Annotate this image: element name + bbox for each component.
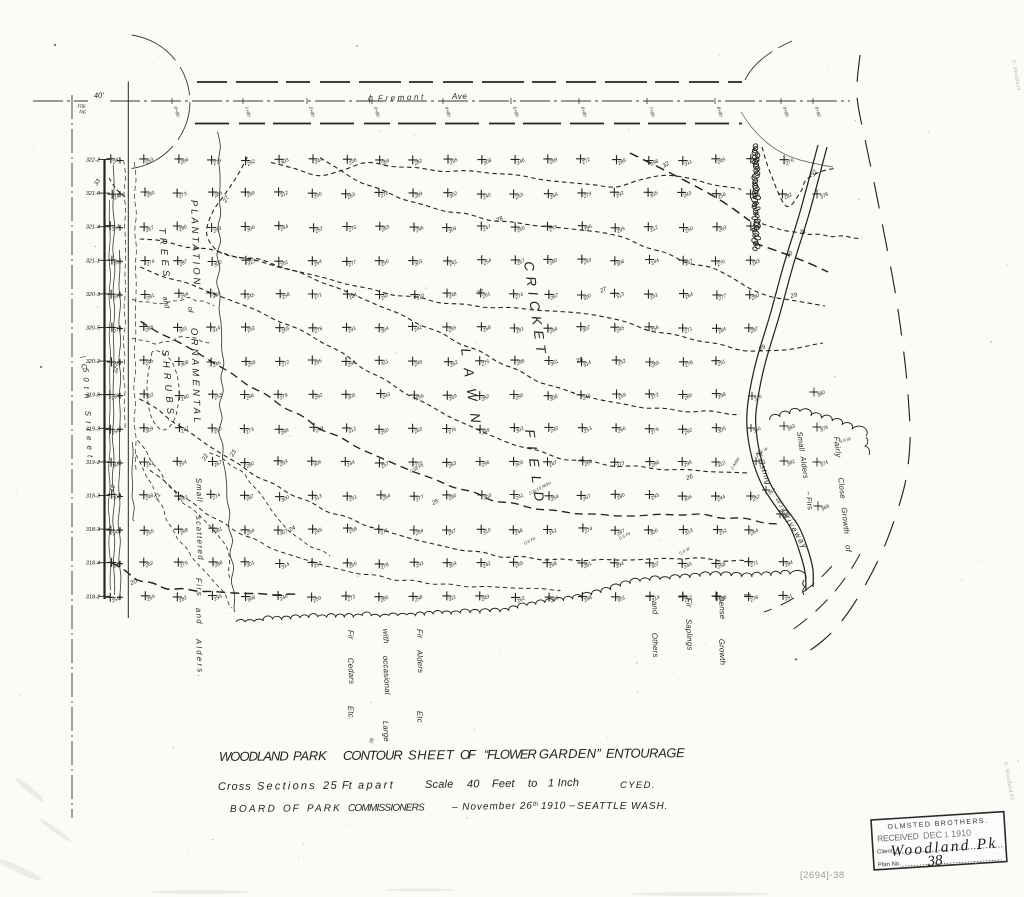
- svg-text:[2694]-38: [2694]-38: [800, 870, 845, 881]
- svg-text:Ave: Ave: [451, 92, 467, 101]
- svg-text:Large: Large: [381, 721, 391, 743]
- svg-text:319-3: 319-3: [86, 426, 101, 432]
- svg-text:with: with: [381, 629, 391, 644]
- svg-text:Feet: Feet: [492, 778, 516, 790]
- svg-text:SEATTLE WASH.: SEATTLE WASH.: [577, 801, 668, 812]
- svg-text:Others: Others: [650, 633, 660, 658]
- svg-text:318-2: 318-2: [86, 594, 101, 600]
- svg-text:and: and: [194, 608, 204, 625]
- svg-text:Fir: Fir: [346, 630, 356, 640]
- svg-text:and: and: [650, 601, 660, 616]
- svg-text:Small: Small: [194, 478, 204, 503]
- svg-text:OF: OF: [460, 747, 477, 762]
- svg-text:Fremont: Fremont: [378, 92, 424, 103]
- svg-text:Fir: Fir: [415, 629, 425, 639]
- svg-text:318-3: 318-3: [86, 494, 101, 500]
- svg-text:COMMISSIONERS: COMMISSIONERS: [348, 802, 425, 814]
- svg-text:322-2: 322-2: [86, 158, 101, 164]
- svg-text:Alders: Alders: [415, 649, 425, 674]
- svg-text:Fir: Fir: [684, 598, 694, 608]
- svg-text:th: th: [533, 802, 539, 808]
- svg-text:319-2: 319-2: [86, 460, 101, 466]
- svg-text:321-4: 321-4: [86, 225, 100, 231]
- svg-text:Cross: Cross: [218, 781, 251, 793]
- svg-text:CYED.: CYED.: [620, 780, 655, 791]
- svg-text:321-0: 321-0: [86, 191, 101, 197]
- svg-text:Scale: Scale: [425, 779, 454, 791]
- svg-text:PARK: PARK: [307, 803, 341, 814]
- svg-text:CONTOUR: CONTOUR: [343, 747, 403, 763]
- svg-text:1910 –: 1910 –: [541, 800, 576, 812]
- svg-text:320-5: 320-5: [86, 326, 101, 332]
- svg-text:– November 26: – November 26: [451, 801, 533, 813]
- svg-text:GARDEN”: GARDEN”: [539, 746, 602, 762]
- svg-text:40′: 40′: [94, 90, 105, 100]
- svg-text:Cedars: Cedars: [346, 658, 356, 685]
- svg-text:Firs: Firs: [194, 578, 204, 596]
- svg-text:318-4: 318-4: [86, 561, 100, 567]
- svg-text:Growth: Growth: [717, 639, 727, 666]
- svg-text:320-2: 320-2: [86, 359, 101, 365]
- svg-text:WOODLAND: WOODLAND: [219, 748, 289, 764]
- svg-text:“FLOWER: “FLOWER: [484, 746, 537, 761]
- svg-text:Firs: Firs: [804, 496, 815, 510]
- svg-text:318-3: 318-3: [86, 527, 101, 533]
- svg-text:320-3: 320-3: [86, 292, 101, 298]
- svg-text:319-8: 319-8: [86, 393, 101, 399]
- svg-text:PARK: PARK: [293, 748, 328, 763]
- svg-text:38: 38: [926, 852, 944, 870]
- svg-text:Saplings: Saplings: [684, 619, 695, 651]
- svg-text:Etc: Etc: [415, 711, 425, 723]
- svg-text:Dense: Dense: [717, 596, 727, 620]
- svg-text:BOARD: BOARD: [230, 804, 275, 815]
- svg-text:321-1: 321-1: [86, 258, 100, 264]
- svg-text:ENTOURAGE: ENTOURAGE: [606, 745, 685, 761]
- svg-text:40: 40: [467, 778, 481, 790]
- svg-text:Ft: Ft: [342, 780, 353, 792]
- svg-text:25: 25: [322, 780, 338, 792]
- svg-text:1 Inch: 1 Inch: [548, 777, 579, 790]
- svg-text:SHEET: SHEET: [408, 747, 455, 762]
- svg-text:Etc.: Etc.: [346, 706, 356, 721]
- svg-text:to: to: [528, 778, 538, 790]
